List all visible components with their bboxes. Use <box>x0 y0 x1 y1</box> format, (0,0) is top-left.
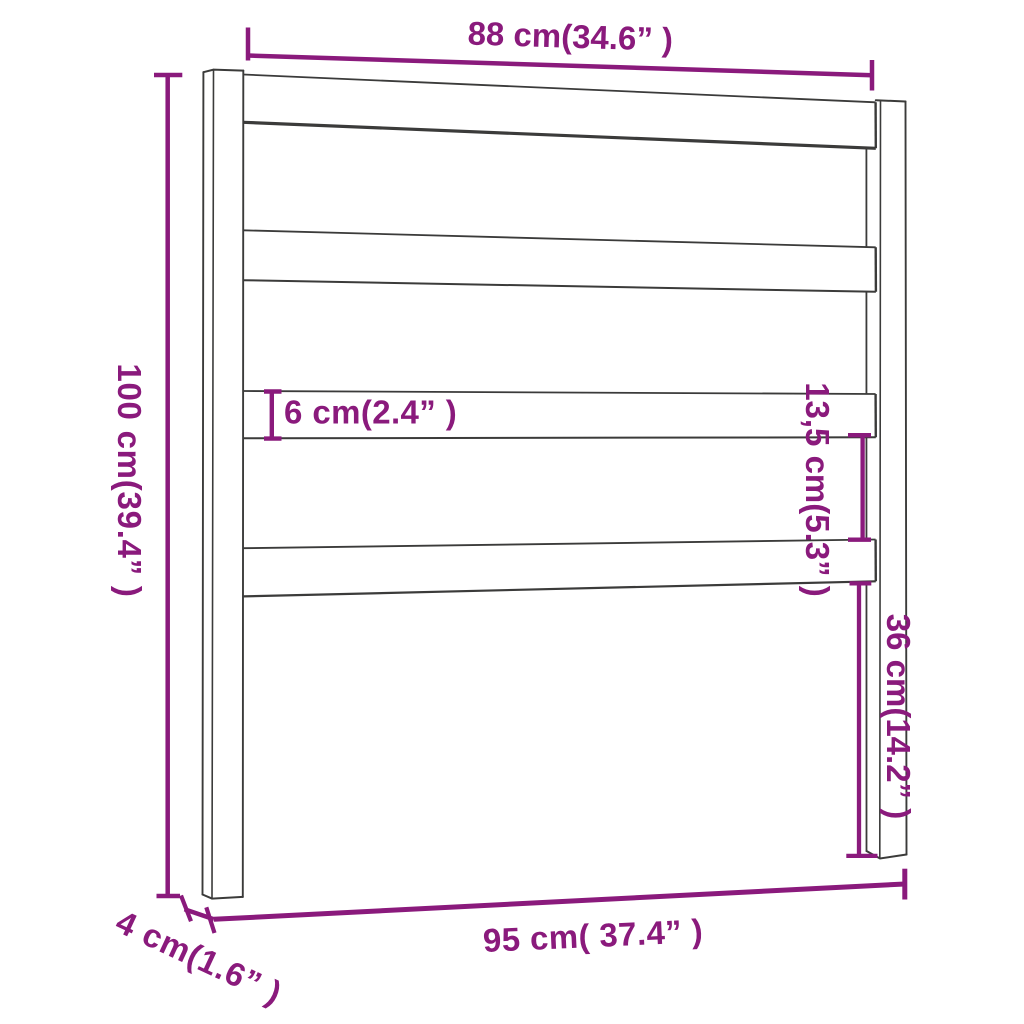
svg-text:36 cm(14.2” ): 36 cm(14.2” ) <box>880 614 917 819</box>
svg-text:88 cm(34.6” ): 88 cm(34.6” ) <box>467 14 674 57</box>
svg-text:6 cm(2.4” ): 6 cm(2.4” ) <box>284 394 457 431</box>
svg-text:100 cm(39.4” ): 100 cm(39.4” ) <box>111 363 148 597</box>
svg-text:13,5 cm(5.3” ): 13,5 cm(5.3” ) <box>799 382 836 597</box>
